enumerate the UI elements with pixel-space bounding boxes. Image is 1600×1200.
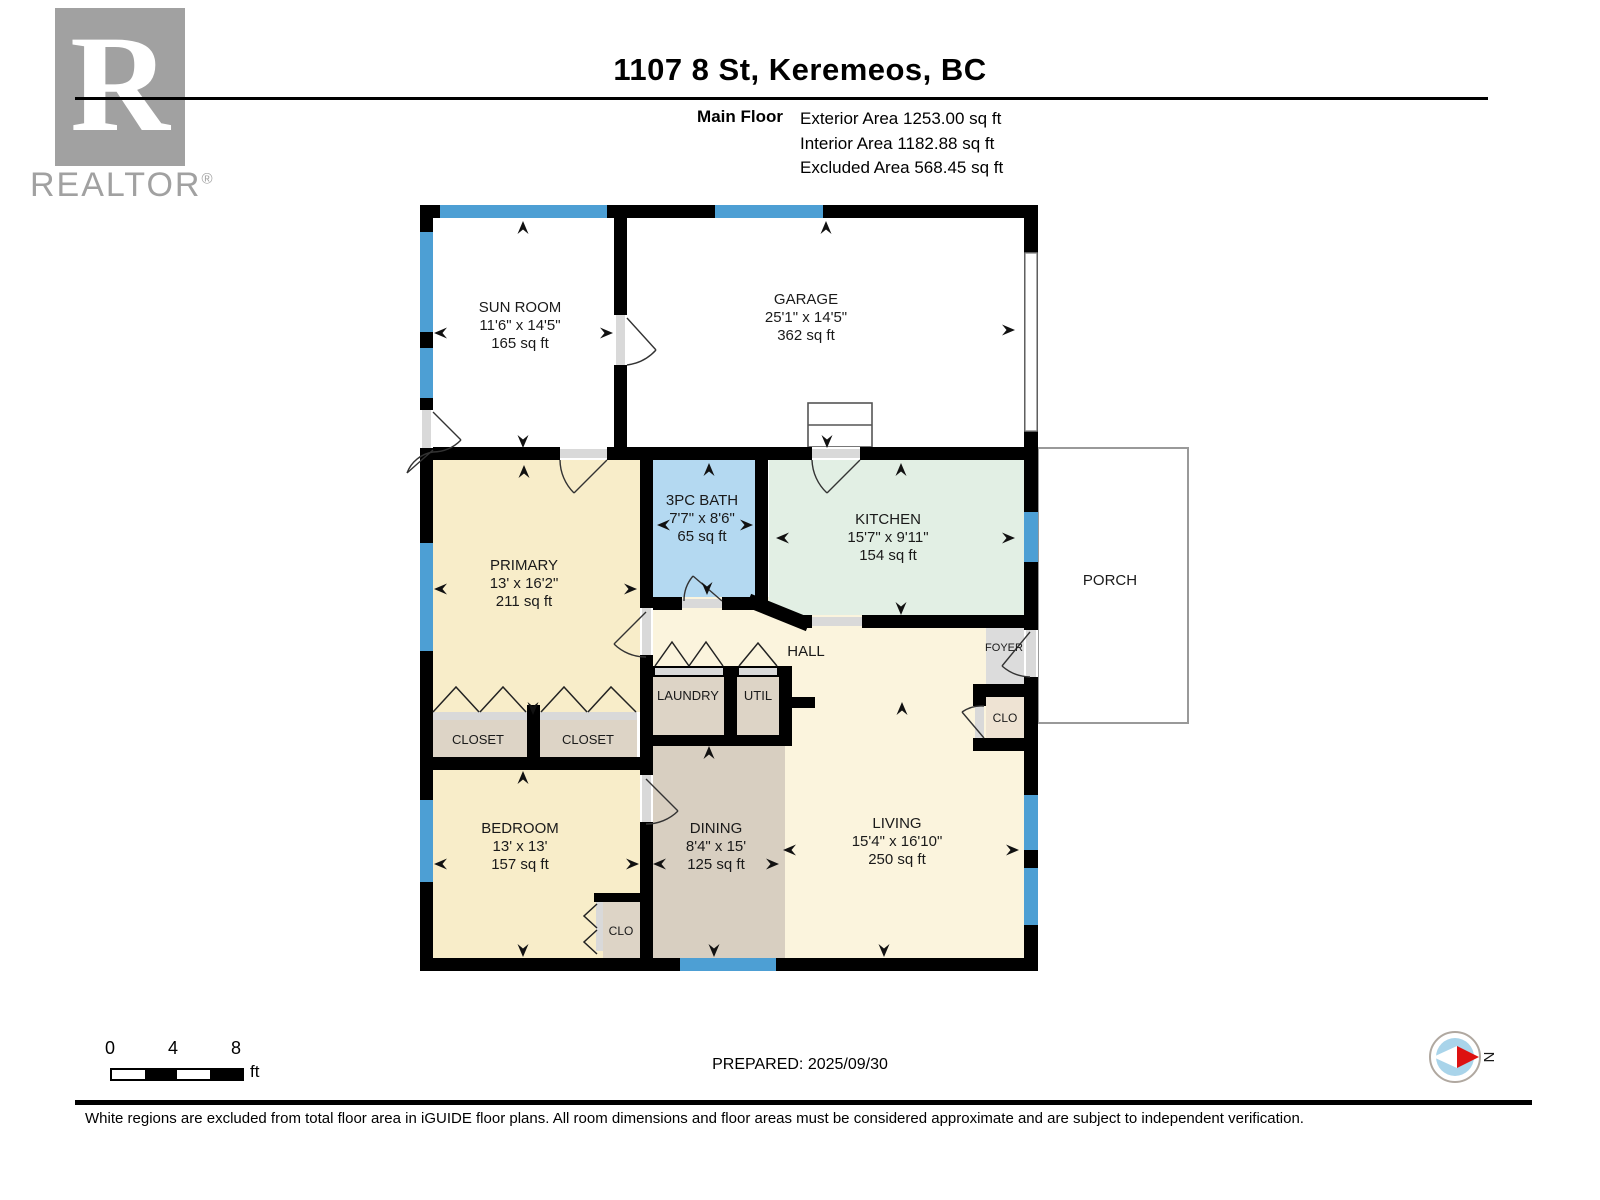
svg-text:25'1" x 14'5": 25'1" x 14'5" xyxy=(765,309,847,326)
disclaimer-text: White regions are excluded from total fl… xyxy=(85,1110,1485,1127)
garage-door xyxy=(1025,253,1037,431)
svg-text:15'4" x 16'10": 15'4" x 16'10" xyxy=(852,833,943,850)
room-label-dining: DINING xyxy=(690,820,743,837)
room-label-util: UTIL xyxy=(744,688,772,703)
svg-text:211 sq ft: 211 sq ft xyxy=(496,593,553,610)
room-label-porch: PORCH xyxy=(1083,572,1137,589)
svg-text:15'7" x 9'11": 15'7" x 9'11" xyxy=(847,529,928,546)
svg-text:165 sq ft: 165 sq ft xyxy=(491,335,549,352)
header-divider xyxy=(75,97,1488,100)
floor-plan-page: R REALTOR® 1107 8 St, Keremeos, BC Main … xyxy=(0,0,1600,1200)
room-label-hall: HALL xyxy=(787,643,825,660)
room-label-bath: 3PC BATH xyxy=(666,492,738,509)
page-title: 1107 8 St, Keremeos, BC xyxy=(0,52,1600,88)
room-label-clo-bedroom: CLO xyxy=(609,924,634,938)
svg-text:11'6" x 14'5": 11'6" x 14'5" xyxy=(479,317,560,334)
svg-text:7'7" x 8'6": 7'7" x 8'6" xyxy=(669,510,735,527)
svg-text:125 sq ft: 125 sq ft xyxy=(687,856,745,873)
room-util-floor xyxy=(737,677,779,735)
room-label-laundry: LAUNDRY xyxy=(657,688,719,703)
realtor-logo-wordmark: REALTOR® xyxy=(30,166,215,205)
svg-text:8'4" x 15': 8'4" x 15' xyxy=(686,838,746,855)
registered-trademark-symbol: ® xyxy=(201,171,214,188)
room-label-kitchen: KITCHEN xyxy=(855,511,921,528)
room-label-sun-room: SUN ROOM xyxy=(479,299,562,316)
room-label-closet-right: CLOSET xyxy=(562,732,614,747)
svg-text:13' x 13': 13' x 13' xyxy=(493,838,548,855)
svg-text:13' x 16'2": 13' x 16'2" xyxy=(490,575,559,592)
room-label-foyer: FOYER xyxy=(985,642,1023,654)
svg-text:157 sq ft: 157 sq ft xyxy=(491,856,549,873)
garage-steps xyxy=(808,403,872,447)
room-label-clo-foyer: CLO xyxy=(993,711,1018,725)
prepared-date: PREPARED: 2025/09/30 xyxy=(0,1056,1600,1074)
footer-divider xyxy=(75,1100,1532,1105)
room-laundry-floor xyxy=(653,677,724,735)
room-label-closet-left: CLOSET xyxy=(452,732,504,747)
room-label-primary: PRIMARY xyxy=(490,557,558,574)
room-label-living: LIVING xyxy=(872,815,921,832)
floor-plan-drawing: SUN ROOM 11'6" x 14'5" 165 sq ft GARAGE … xyxy=(0,0,1600,1200)
svg-text:250 sq ft: 250 sq ft xyxy=(868,851,926,868)
svg-text:154 sq ft: 154 sq ft xyxy=(859,547,917,564)
svg-text:362 sq ft: 362 sq ft xyxy=(777,327,835,344)
room-label-bedroom: BEDROOM xyxy=(481,820,559,837)
svg-text:65 sq ft: 65 sq ft xyxy=(677,528,727,545)
realtor-logo-brand: REALTOR xyxy=(30,166,201,204)
room-label-garage: GARAGE xyxy=(774,291,838,308)
